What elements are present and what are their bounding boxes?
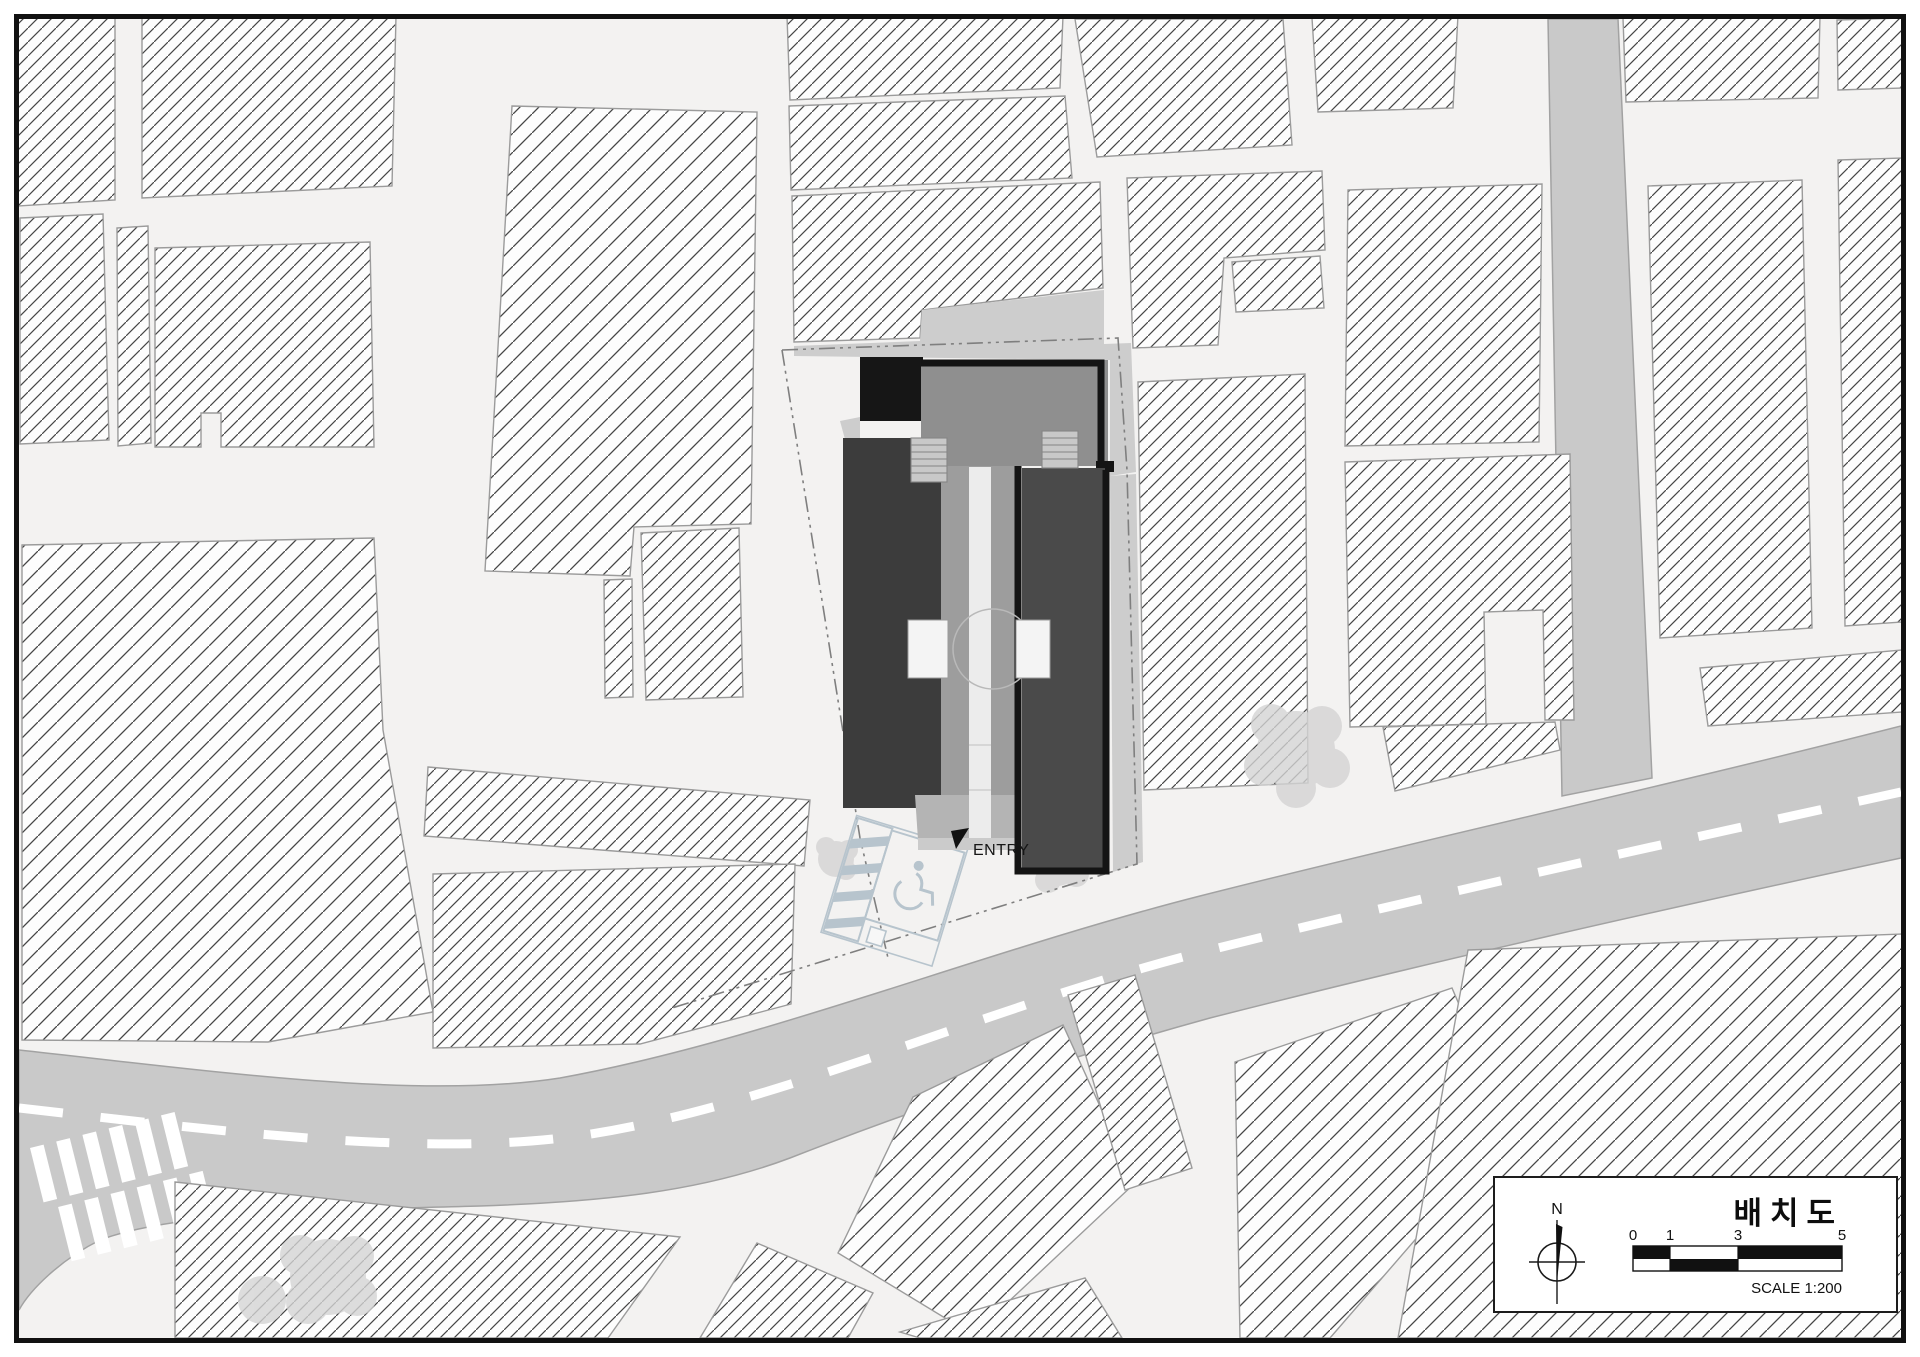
svg-text:1: 1 (1666, 1227, 1674, 1244)
title-block: 배치도 N 0 1 3 5 SCALE 1:200 (1493, 1176, 1898, 1313)
north-arrow-icon: N (1529, 1201, 1585, 1304)
north-label: N (1551, 1201, 1563, 1218)
scale-bar: 0 1 3 5 SCALE 1:200 (1629, 1227, 1846, 1297)
drawing-title: 배치도 (1733, 1196, 1843, 1231)
svg-text:3: 3 (1734, 1227, 1742, 1244)
building-annex-block (860, 357, 923, 421)
building-skylight-strip (969, 467, 991, 838)
svg-text:0: 0 (1629, 1227, 1637, 1244)
building-roof-slab (921, 360, 1108, 466)
site-plan-map: ENTRY (0, 0, 1920, 1357)
entry-label: ENTRY (973, 842, 1029, 859)
scale-label: SCALE 1:200 (1751, 1280, 1842, 1297)
svg-text:5: 5 (1838, 1227, 1846, 1244)
site-plan-sheet: ENTRY 배치도 N 0 1 3 5 (0, 0, 1920, 1357)
